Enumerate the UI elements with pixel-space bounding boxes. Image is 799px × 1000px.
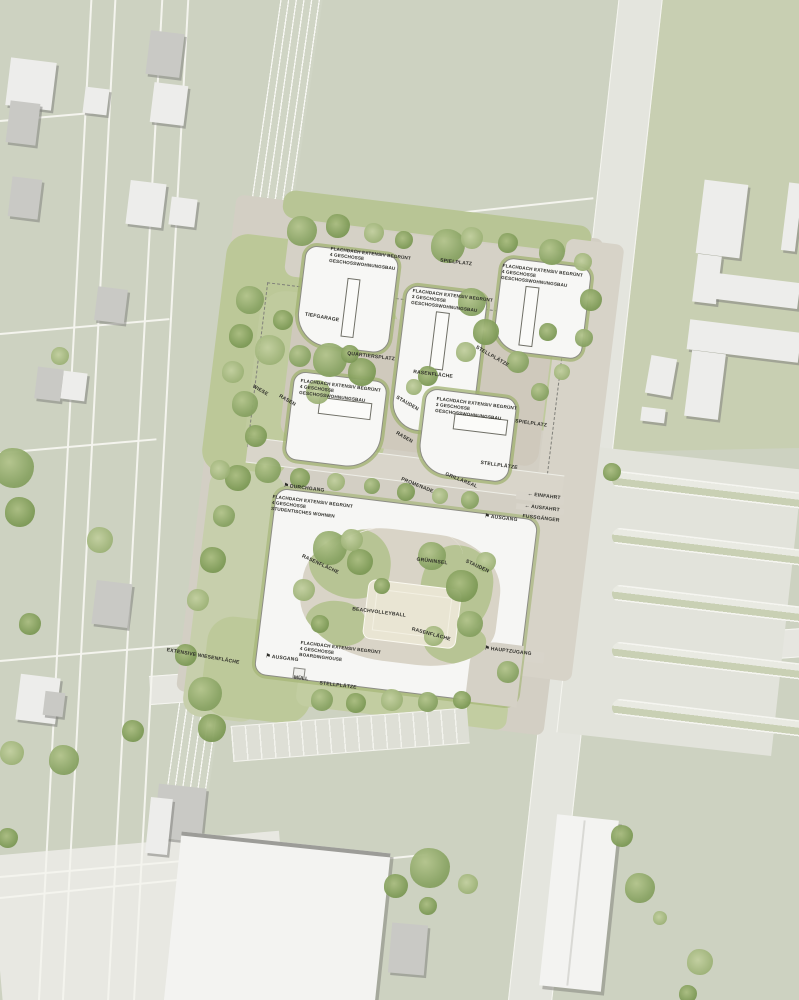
tree: [410, 848, 450, 888]
house-white: [125, 180, 166, 228]
tree: [458, 874, 478, 894]
tree: [679, 985, 697, 1000]
house-white: [168, 197, 197, 228]
tree: [461, 491, 479, 509]
tree: [611, 825, 633, 847]
tree: [687, 949, 713, 975]
tree: [213, 505, 235, 527]
tree: [531, 383, 549, 401]
tree: [395, 231, 413, 249]
arrow-icon: ←: [527, 491, 533, 498]
tree: [539, 323, 557, 341]
flag-icon: ⚑: [283, 483, 289, 490]
house-gray-roof: [145, 30, 184, 78]
tree: [461, 227, 483, 249]
tree: [200, 547, 226, 573]
tree: [222, 361, 244, 383]
tree: [384, 874, 408, 898]
tree: [289, 345, 311, 367]
tree: [311, 689, 333, 711]
tree: [187, 589, 209, 611]
house-gray-roof: [8, 176, 43, 219]
tree: [498, 233, 518, 253]
house-gray-roof: [91, 580, 132, 628]
industrial-hall-southwest: [163, 832, 390, 1000]
tree: [327, 473, 345, 491]
tree: [255, 335, 285, 365]
tree: [232, 391, 258, 417]
tree: [236, 286, 264, 314]
tree: [456, 342, 476, 362]
tree: [0, 828, 18, 848]
tree: [419, 897, 437, 915]
tree: [255, 457, 281, 483]
house-gray-roof: [94, 286, 128, 323]
rooflight-ne: [518, 286, 539, 347]
house-white: [83, 87, 110, 116]
tree: [381, 689, 403, 711]
house-gray-roof: [388, 923, 428, 976]
tree: [273, 310, 293, 330]
tree: [0, 448, 34, 488]
tree: [497, 661, 519, 683]
tree: [539, 239, 565, 265]
tree: [293, 579, 315, 601]
tree: [406, 379, 422, 395]
house-white: [150, 82, 189, 126]
tree: [574, 253, 592, 271]
flag-icon: ⚑: [484, 645, 490, 652]
tree: [51, 347, 69, 365]
tree: [418, 692, 438, 712]
flag-icon: ⚑: [265, 653, 271, 660]
tree: [580, 289, 602, 311]
tree: [625, 873, 655, 903]
tree: [19, 613, 41, 635]
tree: [507, 351, 529, 373]
tree: [446, 570, 478, 602]
house-white: [696, 180, 749, 259]
tree: [347, 549, 373, 575]
rooflight-nw: [340, 278, 360, 338]
site-plan-canvas: FLACHDACH EXTENSIV BEGRÜNT4 GESCHOSSEGES…: [0, 0, 799, 1000]
house-gray-roof: [34, 367, 64, 402]
tree: [0, 741, 24, 765]
tree: [5, 497, 35, 527]
tree: [364, 223, 384, 243]
tree: [229, 324, 253, 348]
house-white: [640, 407, 666, 424]
tree: [453, 691, 471, 709]
tree: [364, 478, 380, 494]
tree: [653, 911, 667, 925]
house-white: [60, 371, 87, 402]
tree: [49, 745, 79, 775]
tree: [554, 364, 570, 380]
tree: [374, 578, 390, 594]
tree: [457, 611, 483, 637]
tree: [432, 488, 448, 504]
tree: [287, 216, 317, 246]
tree: [87, 527, 113, 553]
arrow-icon: ←: [524, 503, 530, 510]
tree: [473, 319, 499, 345]
rooflight-n-mitte: [429, 311, 450, 370]
tree: [346, 693, 366, 713]
tree: [326, 214, 350, 238]
house-gray-roof: [6, 100, 41, 145]
tree: [198, 714, 226, 742]
tree: [575, 329, 593, 347]
tree: [245, 425, 267, 447]
tree: [210, 460, 230, 480]
tree: [341, 529, 363, 551]
tree: [188, 677, 222, 711]
tree: [311, 615, 329, 633]
tree: [603, 463, 621, 481]
tree: [122, 720, 144, 742]
flag-icon: ⚑: [484, 513, 490, 520]
house-gray-roof: [43, 691, 66, 717]
